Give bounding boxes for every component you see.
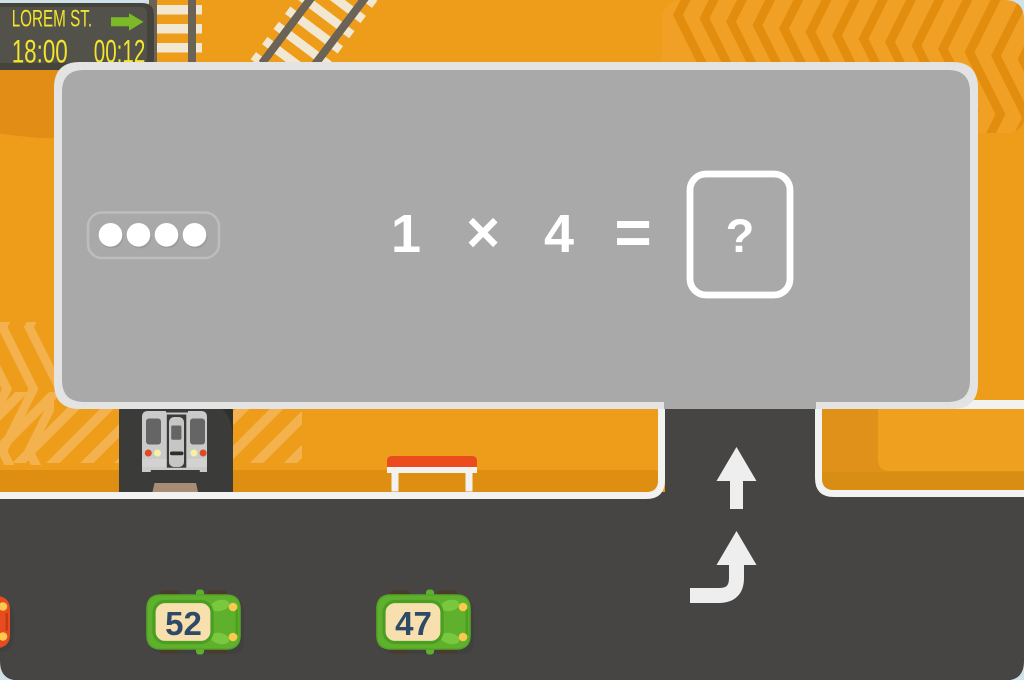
- svg-text:LOREM ST.: LOREM ST.: [12, 6, 92, 32]
- svg-text:18:00: 18:00: [12, 34, 68, 70]
- svg-text:×: ×: [466, 200, 500, 265]
- svg-text:=: =: [614, 196, 651, 268]
- svg-text:4: 4: [544, 204, 574, 264]
- svg-text:?: ?: [726, 209, 755, 262]
- svg-text:47: 47: [395, 605, 432, 642]
- svg-text:1: 1: [391, 204, 421, 264]
- svg-text:52: 52: [165, 605, 202, 642]
